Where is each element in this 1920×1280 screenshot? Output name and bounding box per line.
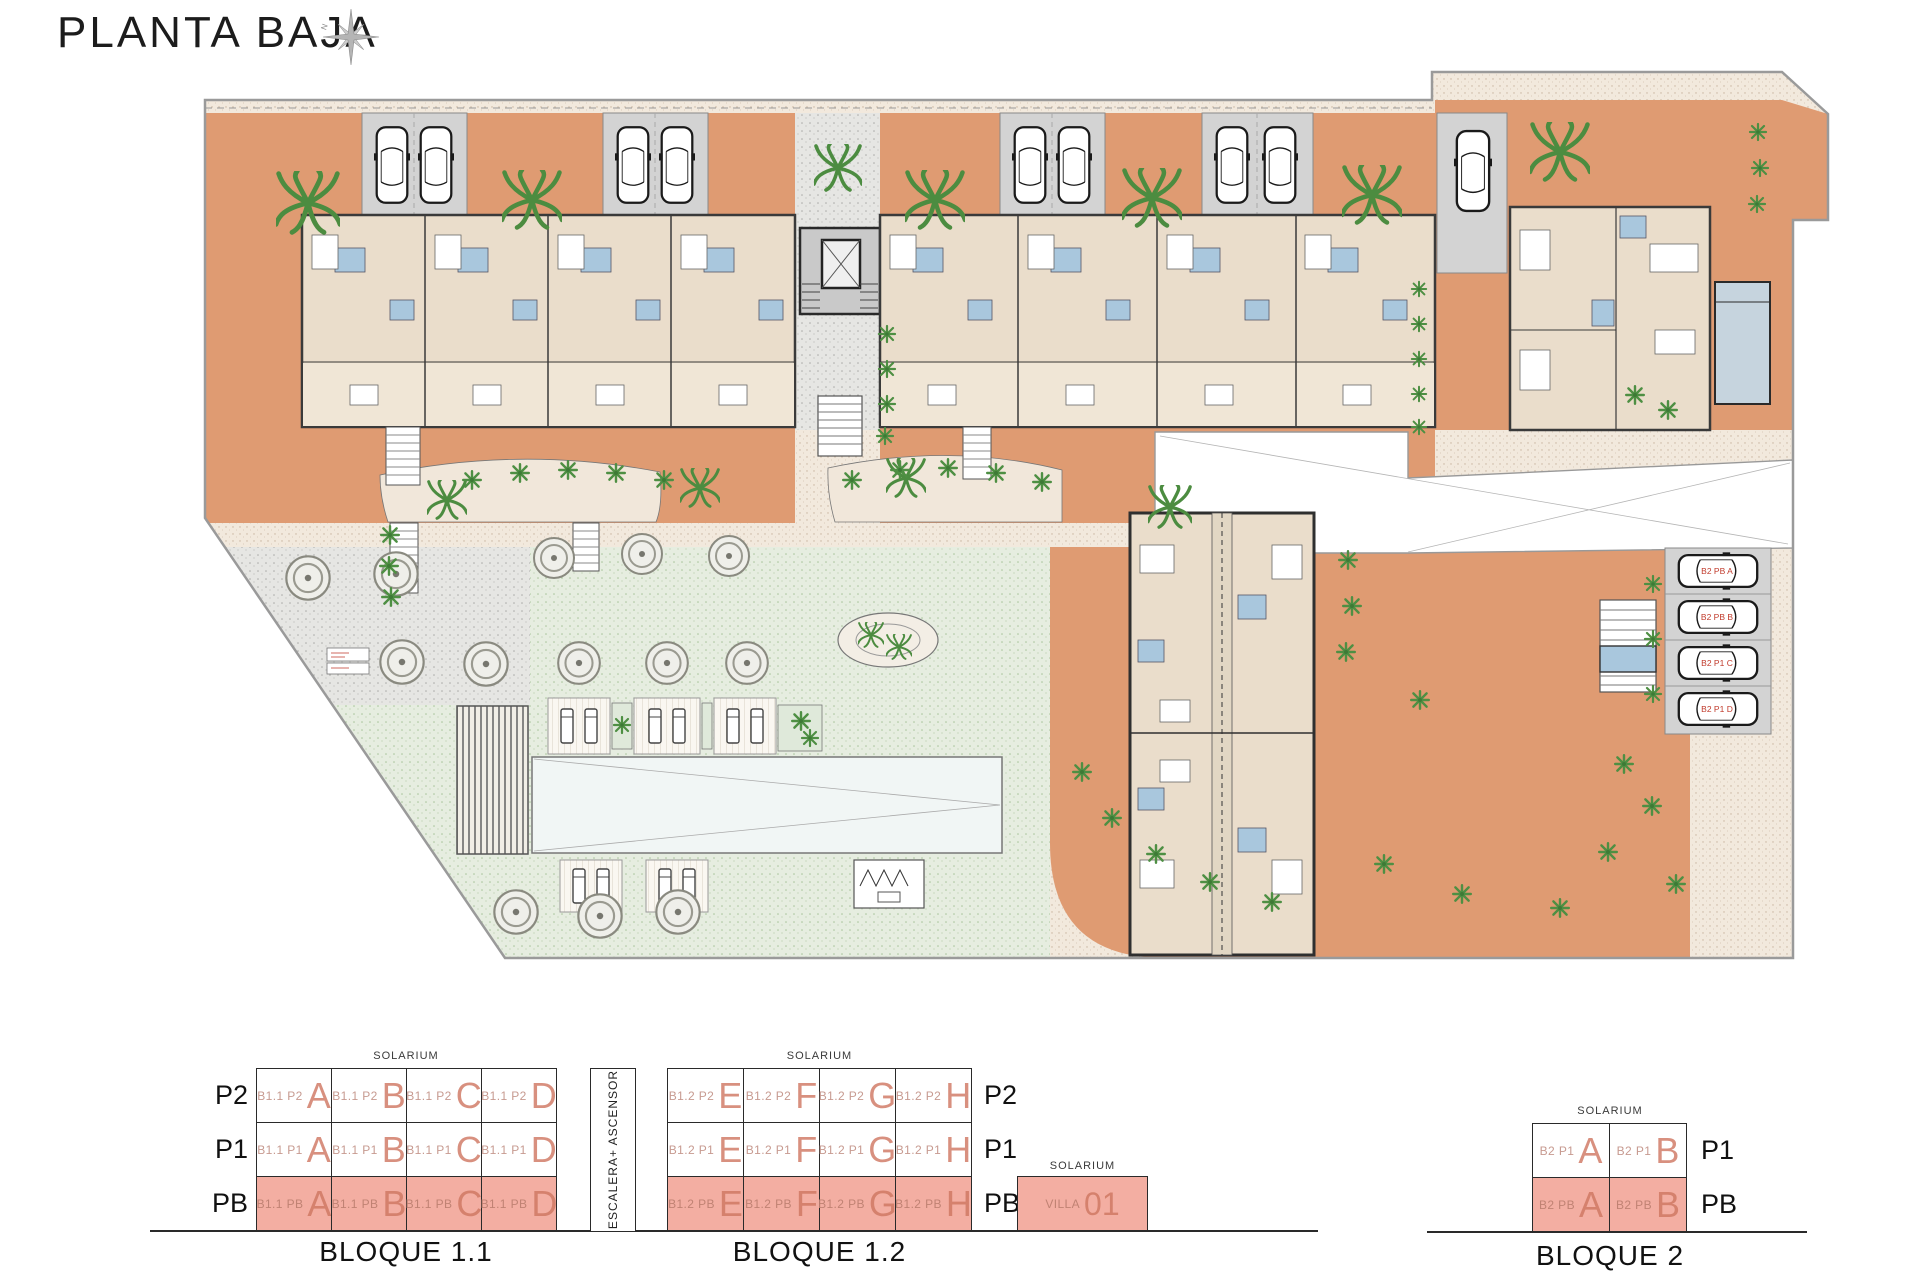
villa-number: 01 <box>1084 1188 1120 1220</box>
floor-label-p2: P2 <box>984 1068 1074 1123</box>
villa-prefix: VILLA <box>1045 1197 1080 1211</box>
floor-label-pb: PB <box>178 1176 248 1231</box>
unit-cell-b11-pb-a: B1.1 PBA <box>256 1176 332 1231</box>
unit-prefix: B1.2 PB <box>745 1197 792 1211</box>
unit-cell-b12-p2-f: B1.2 P2F <box>743 1068 820 1123</box>
unit-prefix: B1.2 P1 <box>746 1143 792 1157</box>
unit-letter: G <box>868 1132 896 1168</box>
pool-bar <box>854 860 924 908</box>
unit-letter: E <box>718 1078 742 1114</box>
solarium-label-b12: SOLARIUM <box>667 1050 972 1062</box>
unit-letter: E <box>718 1132 742 1168</box>
unit-letter: A <box>1579 1187 1603 1223</box>
unit-letter: G <box>869 1186 897 1222</box>
unit-prefix: B1.2 PB <box>818 1197 865 1211</box>
floor-label-p1: P1 <box>1701 1123 1781 1178</box>
unit-cell-b11-p2-d: B1.1 P2D <box>481 1068 557 1123</box>
unit-letter: C <box>456 1078 482 1114</box>
unit-cell-b11-pb-b: B1.1 PBB <box>331 1176 407 1231</box>
unit-prefix: B1.2 P2 <box>746 1089 792 1103</box>
compass-north-label: N <box>319 22 330 31</box>
building-bloque-1-1 <box>302 215 795 427</box>
swimming-pool <box>532 757 1002 853</box>
unit-letter: F <box>795 1132 817 1168</box>
unit-prefix: B1.1 P2 <box>481 1089 527 1103</box>
unit-letter: B <box>1655 1133 1679 1169</box>
unit-prefix: B1.1 PB <box>332 1197 379 1211</box>
unit-prefix: B2 PB <box>1539 1198 1575 1212</box>
unit-prefix: B1.1 P2 <box>257 1089 303 1103</box>
unit-cell-b2-pb-a: B2 PBA <box>1532 1177 1610 1232</box>
unit-cell-villa-01: VILLA 01 <box>1017 1176 1148 1231</box>
unit-cell-b11-pb-d: B1.1 PBD <box>481 1176 557 1231</box>
unit-cell-b12-pb-e: B1.2 PBE <box>667 1176 744 1231</box>
unit-cell-b11-p1-d: B1.1 P1D <box>481 1122 557 1177</box>
unit-letter: D <box>531 1078 557 1114</box>
unit-cell-b12-p1-f: B1.2 P1F <box>743 1122 820 1177</box>
unit-letter: A <box>1578 1133 1602 1169</box>
unit-prefix: B1.1 PB <box>257 1197 304 1211</box>
unit-letter: C <box>456 1186 482 1222</box>
unit-cell-b12-p1-e: B1.2 P1E <box>667 1122 744 1177</box>
unit-letter: D <box>531 1132 557 1168</box>
unit-prefix: B1.1 P2 <box>406 1089 452 1103</box>
unit-letter: C <box>456 1132 482 1168</box>
solarium-label-villa: SOLARIUM <box>1017 1160 1148 1172</box>
bloque-1-2-title: BLOQUE 1.2 <box>667 1236 972 1268</box>
stair-elevator-core <box>795 113 880 456</box>
parking-label: B2 PB A <box>1701 566 1733 576</box>
unit-cell-b11-p1-c: B1.1 P1C <box>406 1122 482 1177</box>
unit-letter: A <box>307 1186 331 1222</box>
compass-icon: N <box>318 6 384 68</box>
unit-prefix: B1.2 P1 <box>819 1143 865 1157</box>
unit-prefix: B1.2 P2 <box>896 1089 942 1103</box>
unit-letter: H <box>945 1078 971 1114</box>
unit-prefix: B1.1 P1 <box>481 1143 527 1157</box>
unit-letter: H <box>946 1186 972 1222</box>
unit-prefix: B2 P1 <box>1540 1144 1575 1158</box>
unit-cell-b12-p1-g: B1.2 P1G <box>819 1122 896 1177</box>
stair-core-box: ESCALERA+ ASCENSOR <box>590 1068 636 1232</box>
pool-sign <box>327 648 369 674</box>
bloque-1-1-title: BLOQUE 1.1 <box>256 1236 556 1268</box>
unit-letter: B <box>382 1186 406 1222</box>
stair-core-label: ESCALERA+ ASCENSOR <box>606 1070 620 1229</box>
floor-label-p2: P2 <box>178 1068 248 1123</box>
unit-prefix: B1.1 PB <box>406 1197 453 1211</box>
floor-label-pb: PB <box>1701 1177 1781 1232</box>
unit-cell-b2-pb-b: B2 PBB <box>1609 1177 1687 1232</box>
unit-letter: E <box>719 1186 743 1222</box>
unit-prefix: B2 PB <box>1616 1198 1652 1212</box>
unit-cell-b11-p1-a: B1.1 P1A <box>256 1122 332 1177</box>
unit-cell-b12-pb-h: B1.2 PBH <box>895 1176 972 1231</box>
unit-prefix: B1.2 PB <box>895 1197 942 1211</box>
solarium-label-b11: SOLARIUM <box>256 1050 556 1062</box>
parking-label: B2 PB B <box>1701 612 1733 622</box>
unit-cell-b2-p1-a: B2 P1A <box>1532 1123 1610 1178</box>
walkway-band <box>205 523 1130 547</box>
unit-prefix: B1.1 P1 <box>332 1143 378 1157</box>
parking-bloque-2: B2 PB A B2 PB B B2 P1 C B2 P1 D <box>1665 548 1771 734</box>
floor-label-p1: P1 <box>178 1122 248 1177</box>
site-plan: B2 PB A B2 PB B B2 P1 C B2 P1 D <box>190 60 1890 980</box>
building-bloque-1-2 <box>880 215 1435 427</box>
unit-letter: D <box>531 1186 557 1222</box>
unit-cell-b12-p2-e: B1.2 P2E <box>667 1068 744 1123</box>
unit-cell-b12-pb-f: B1.2 PBF <box>743 1176 820 1231</box>
unit-prefix: B1.2 P1 <box>669 1143 715 1157</box>
solarium-label-b2: SOLARIUM <box>1532 1105 1688 1117</box>
spa-planter <box>838 613 938 667</box>
unit-letter: G <box>868 1078 896 1114</box>
unit-prefix: B1.1 P1 <box>257 1143 303 1157</box>
unit-prefix: B1.1 P2 <box>332 1089 378 1103</box>
unit-cell-b11-p2-b: B1.1 P2B <box>331 1068 407 1123</box>
unit-prefix: B2 P1 <box>1617 1144 1652 1158</box>
unit-letter: B <box>1656 1187 1680 1223</box>
unit-letter: A <box>307 1132 331 1168</box>
unit-letter: H <box>945 1132 971 1168</box>
unit-letter: F <box>795 1078 817 1114</box>
unit-letter: A <box>307 1078 331 1114</box>
bloque-2-title: BLOQUE 2 <box>1500 1240 1720 1272</box>
unit-cell-b11-p1-b: B1.1 P1B <box>331 1122 407 1177</box>
unit-cell-b12-p2-h: B1.2 P2H <box>895 1068 972 1123</box>
unit-cell-b11-p2-a: B1.1 P2A <box>256 1068 332 1123</box>
unit-cell-b12-p2-g: B1.2 P2G <box>819 1068 896 1123</box>
unit-cell-b2-p1-b: B2 P1B <box>1609 1123 1687 1178</box>
unit-cell-b11-pb-c: B1.1 PBC <box>406 1176 482 1231</box>
unit-prefix: B1.2 PB <box>668 1197 715 1211</box>
unit-cell-b12-p1-h: B1.2 P1H <box>895 1122 972 1177</box>
unit-prefix: B1.2 P2 <box>669 1089 715 1103</box>
parking-label: B2 P1 C <box>1701 658 1733 668</box>
unit-cell-b12-pb-g: B1.2 PBG <box>819 1176 896 1231</box>
unit-letter: F <box>796 1186 818 1222</box>
unit-prefix: B1.2 P2 <box>819 1089 865 1103</box>
unit-prefix: B1.1 PB <box>481 1197 528 1211</box>
unit-cell-b11-p2-c: B1.1 P2C <box>406 1068 482 1123</box>
unit-letter: B <box>382 1132 406 1168</box>
unit-prefix: B1.1 P1 <box>406 1143 452 1157</box>
unit-letter: B <box>382 1078 406 1114</box>
unit-prefix: B1.2 P1 <box>896 1143 942 1157</box>
parking-label: B2 P1 D <box>1701 704 1733 714</box>
